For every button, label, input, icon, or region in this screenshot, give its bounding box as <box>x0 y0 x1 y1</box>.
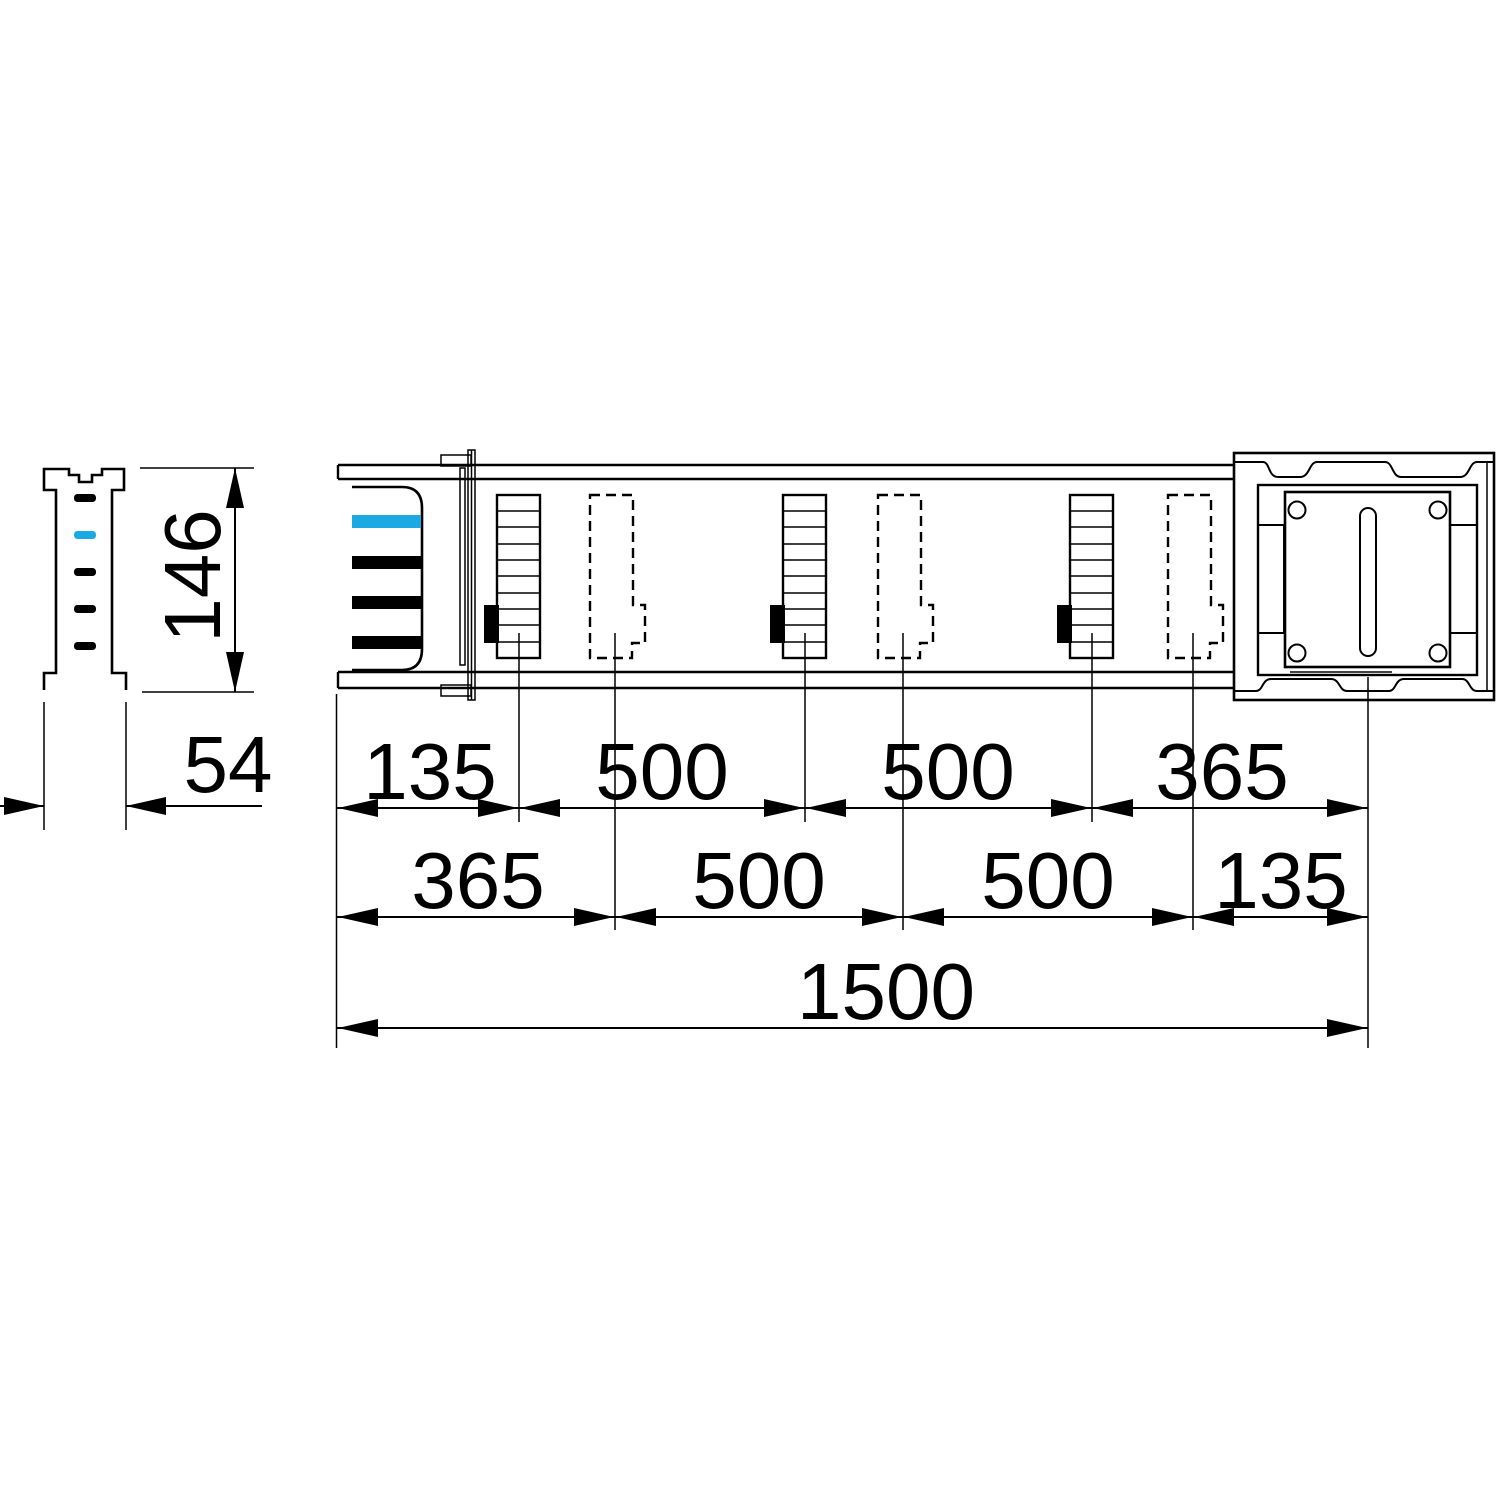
arrow-left-icon <box>126 797 166 815</box>
joint-cover-plate <box>441 450 475 700</box>
dim-label-top-1: 135 <box>363 727 496 816</box>
joint-tab-bottom <box>441 685 471 696</box>
height-dimension: 146 <box>140 468 254 692</box>
dimension-row-top: 135 500 500 365 <box>337 727 1368 817</box>
outlet-latch-3 <box>1057 605 1072 643</box>
drawing-canvas: 146 54 <box>0 0 1500 1500</box>
dim-label-top-4: 365 <box>1155 727 1288 816</box>
dim-label-top-2: 500 <box>595 727 728 816</box>
conductor-bar-black-1 <box>352 556 421 569</box>
section-profile-outline <box>44 469 126 690</box>
arrow-up-icon <box>226 468 244 508</box>
bolt-hole-top-left <box>1289 502 1306 519</box>
tap-off-outlet-solid-2 <box>770 495 826 822</box>
dim-label-mid-3: 500 <box>981 836 1114 925</box>
conductor-tick-4 <box>74 605 96 613</box>
conductor-tick-1 <box>74 494 96 502</box>
bolt-hole-bottom-right <box>1430 645 1447 662</box>
tap-off-outlet-dashed-1 <box>590 495 645 930</box>
side-section-view: 146 54 <box>0 468 272 830</box>
conductor-tick-5 <box>74 642 96 650</box>
dim-label-top-3: 500 <box>881 727 1014 816</box>
bolt-hole-bottom-left <box>1289 645 1306 662</box>
width-dim-label: 54 <box>184 720 273 809</box>
joint-plate-inner <box>460 468 465 665</box>
dim-label-mid-4: 135 <box>1214 836 1347 925</box>
flange-bottom-profile <box>1234 679 1493 691</box>
main-elevation-view: 135 500 500 365 365 500 500 135 1500 <box>337 450 1495 1048</box>
flange-bracket-left <box>1258 525 1284 633</box>
tap-off-outlet-dashed-2 <box>878 495 933 930</box>
arrow-down-icon <box>226 652 244 692</box>
flange-bracket-right <box>1450 525 1477 633</box>
dimension-row-middle: 365 500 500 135 <box>337 836 1368 926</box>
dim-label-mid-1: 365 <box>411 836 544 925</box>
dimension-row-total: 1500 <box>337 947 1368 1037</box>
conductor-tick-accent <box>74 531 96 539</box>
arrow-right-icon <box>4 797 44 815</box>
outlet-latch-2 <box>770 605 785 643</box>
outlet-latch-1 <box>484 605 499 643</box>
width-dimension: 54 <box>0 720 272 815</box>
left-end-cap <box>352 487 422 670</box>
bolt-hole-top-right <box>1430 502 1447 519</box>
dim-label-total: 1500 <box>797 947 975 1036</box>
conductor-bar-black-3 <box>352 636 421 649</box>
conductor-bar-accent <box>352 515 421 528</box>
dim-label-mid-2: 500 <box>692 836 825 925</box>
tap-off-outlet-solid-3 <box>1057 495 1113 822</box>
height-dim-label: 146 <box>148 509 237 642</box>
flange-top-profile <box>1234 462 1493 477</box>
mounting-plate <box>1285 492 1450 667</box>
flange-outer <box>1234 453 1494 700</box>
center-slot <box>1360 508 1376 656</box>
conductor-bar-black-2 <box>352 596 421 609</box>
conductor-tick-3 <box>74 568 96 576</box>
